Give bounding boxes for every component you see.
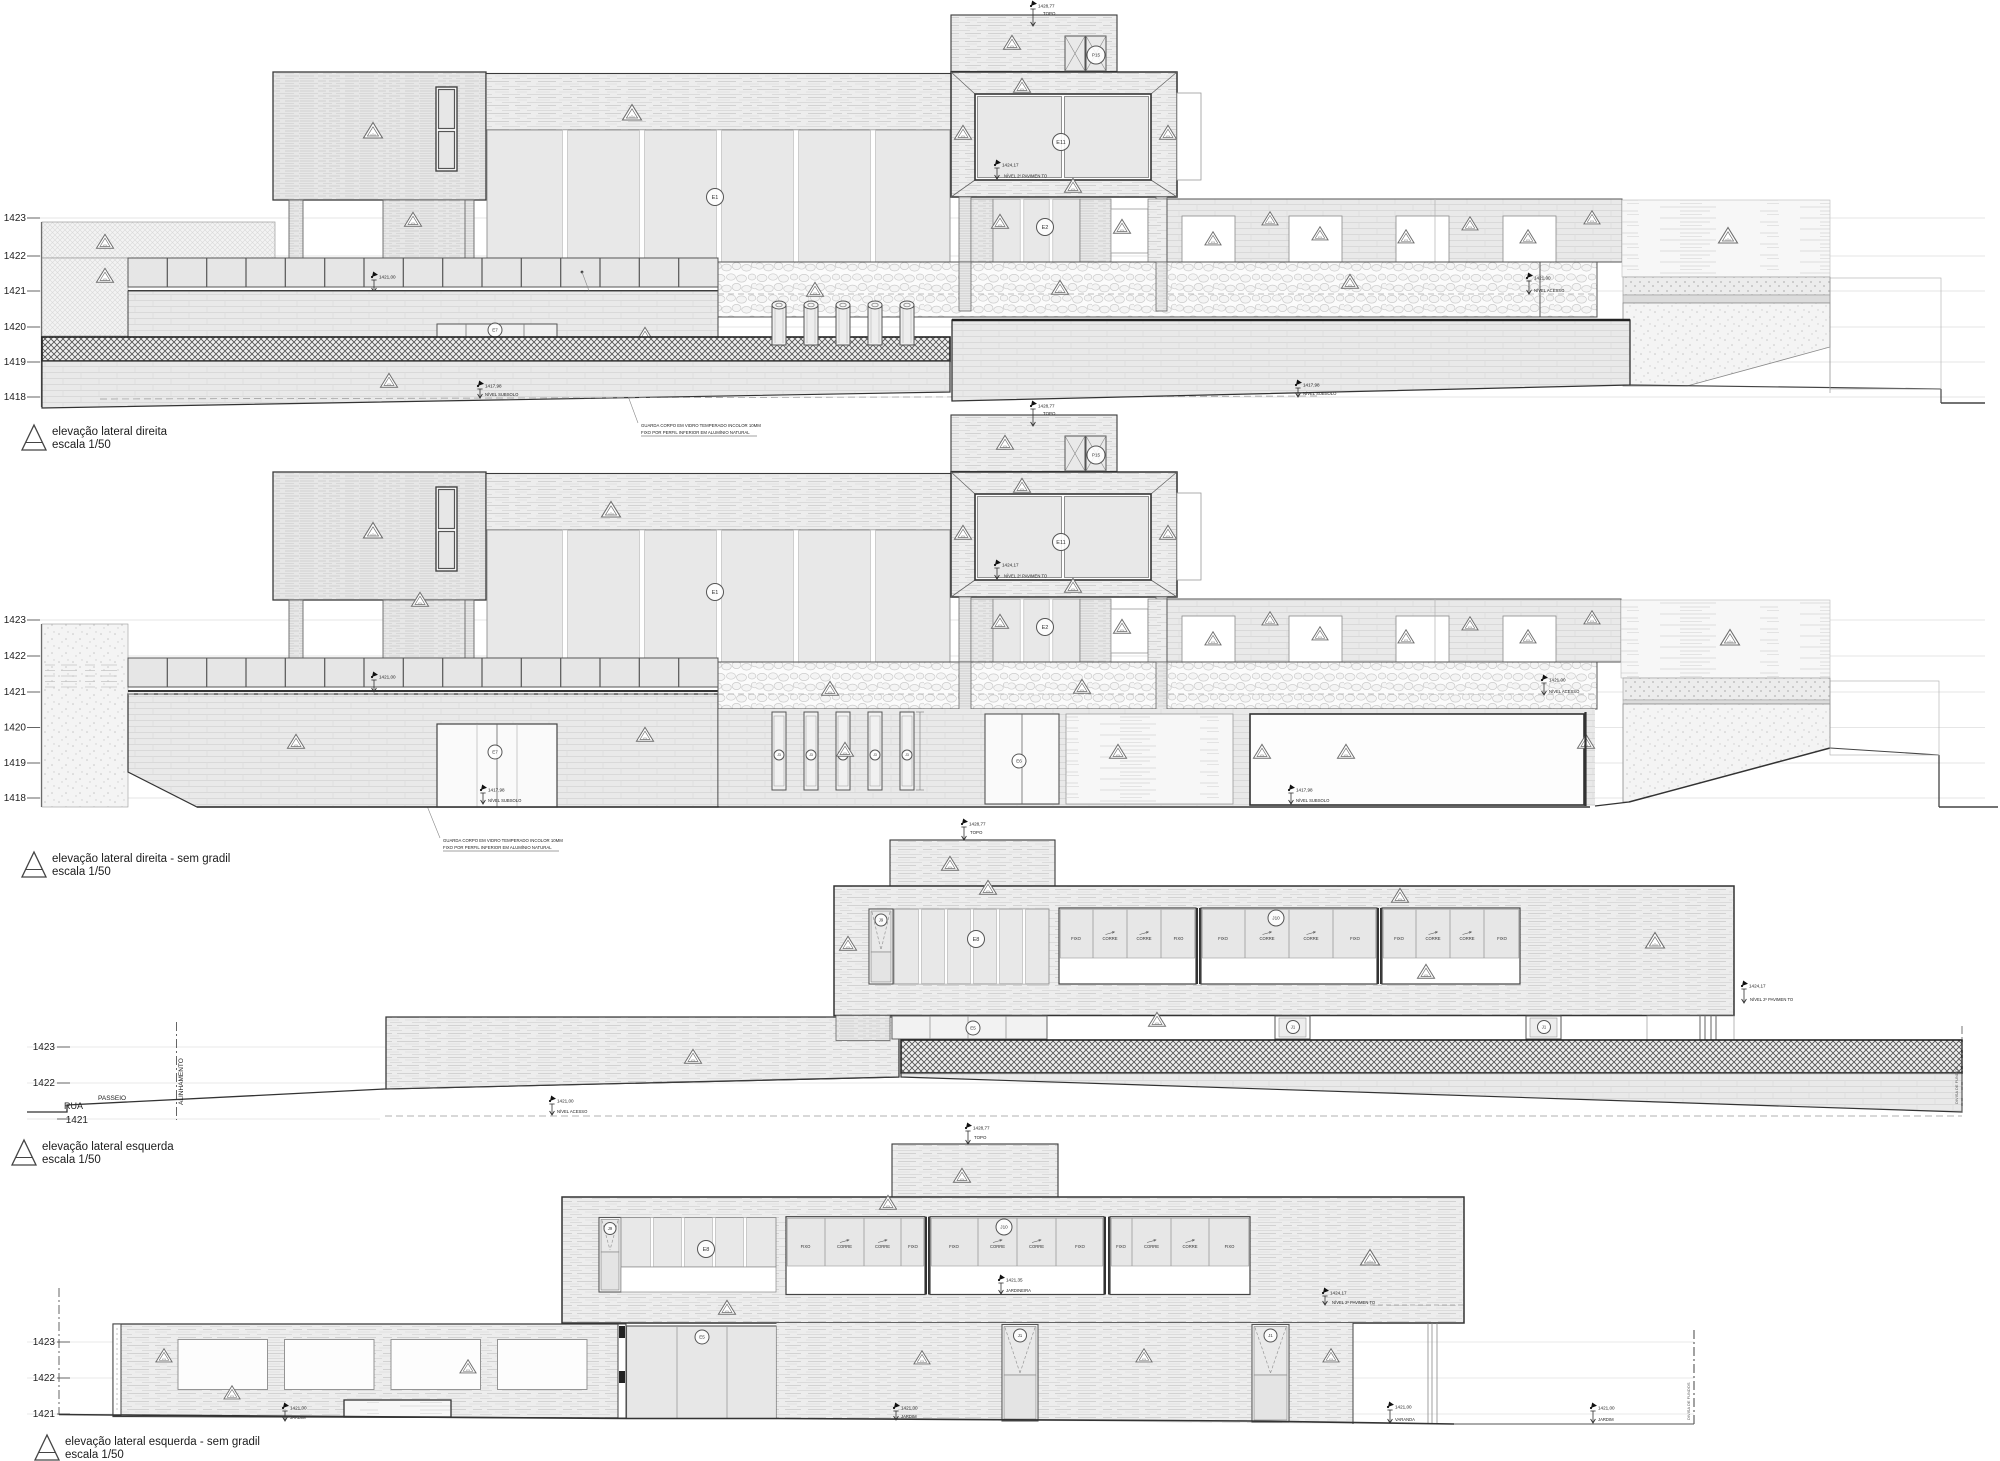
svg-text:J1: J1 — [1268, 1333, 1273, 1338]
svg-text:CORRE: CORRE — [1136, 936, 1151, 941]
svg-text:FIXO: FIXO — [1116, 1244, 1127, 1249]
svg-text:escala 1/50: escala 1/50 — [52, 866, 111, 878]
svg-text:1419: 1419 — [4, 758, 27, 769]
svg-text:E8: E8 — [973, 937, 980, 943]
svg-text:E5: E5 — [970, 1026, 976, 1031]
svg-text:FIXO: FIXO — [801, 1244, 812, 1249]
svg-text:E1: E1 — [712, 590, 719, 596]
svg-text:1417,98: 1417,98 — [488, 788, 505, 793]
svg-text:E2: E2 — [1042, 625, 1049, 631]
svg-text:NÍVEL SUBSOLO: NÍVEL SUBSOLO — [488, 798, 522, 803]
svg-text:1421,00: 1421,00 — [290, 1406, 307, 1411]
svg-text:PASSEIO: PASSEIO — [98, 1095, 126, 1102]
svg-text:1423: 1423 — [33, 1042, 56, 1053]
svg-text:1421: 1421 — [4, 687, 27, 698]
svg-text:GUARDA CORPO EM VIDRO TEMPERAD: GUARDA CORPO EM VIDRO TEMPERADO INCOLOR … — [641, 423, 761, 428]
svg-text:E2: E2 — [1042, 225, 1049, 231]
svg-text:1421,00: 1421,00 — [557, 1099, 574, 1104]
svg-text:1424,17: 1424,17 — [1749, 984, 1766, 989]
svg-text:J1: J1 — [1291, 1025, 1296, 1030]
svg-text:E7: E7 — [492, 750, 498, 755]
svg-text:NÍVEL ACESSO: NÍVEL ACESSO — [1534, 288, 1565, 293]
svg-text:FIXO: FIXO — [1174, 936, 1185, 941]
svg-text:FIXO: FIXO — [1225, 1244, 1236, 1249]
svg-text:CORRE: CORRE — [1144, 1244, 1159, 1249]
svg-text:1418: 1418 — [4, 793, 27, 804]
svg-text:1421,00: 1421,00 — [379, 675, 396, 680]
svg-text:1421,00: 1421,00 — [1395, 1405, 1412, 1410]
svg-text:CORRE: CORRE — [1425, 936, 1440, 941]
svg-text:1417,98: 1417,98 — [485, 384, 502, 389]
svg-text:CORRE: CORRE — [875, 1244, 890, 1249]
svg-text:NÍVEL 2º PAVIMEN TO: NÍVEL 2º PAVIMEN TO — [1332, 1300, 1376, 1305]
svg-text:P15: P15 — [1092, 453, 1101, 458]
svg-text:1424,17: 1424,17 — [1002, 163, 1019, 168]
svg-text:FIXO: FIXO — [1497, 936, 1508, 941]
svg-text:1428,77: 1428,77 — [1038, 4, 1055, 9]
svg-text:1421: 1421 — [66, 1115, 89, 1126]
svg-text:JARDIM: JARDIM — [901, 1414, 917, 1419]
svg-text:1420: 1420 — [4, 723, 27, 734]
svg-text:J10: J10 — [1272, 916, 1280, 921]
svg-text:1422: 1422 — [33, 1373, 56, 1384]
svg-text:E8: E8 — [703, 1247, 710, 1253]
svg-text:E11: E11 — [1056, 540, 1065, 546]
svg-text:FIXO: FIXO — [908, 1244, 919, 1249]
svg-text:1422: 1422 — [33, 1078, 56, 1089]
svg-text:TOPO: TOPO — [970, 830, 983, 835]
svg-text:GUARDA CORPO EM VIDRO TEMPERAD: GUARDA CORPO EM VIDRO TEMPERADO INCOLOR … — [443, 838, 563, 843]
svg-text:elevação lateral esquerda: elevação lateral esquerda — [42, 1141, 174, 1153]
svg-text:CORRE: CORRE — [1102, 936, 1117, 941]
svg-text:NÍVEL SUBSOLO: NÍVEL SUBSOLO — [1303, 391, 1337, 396]
svg-text:FIXO: FIXO — [1071, 936, 1082, 941]
svg-text:J3: J3 — [809, 753, 813, 757]
svg-text:1421: 1421 — [4, 286, 27, 297]
svg-text:elevação lateral direita - sem: elevação lateral direita - sem gradil — [52, 853, 230, 865]
svg-text:1421: 1421 — [33, 1409, 56, 1420]
svg-text:escala 1/50: escala 1/50 — [65, 1449, 124, 1461]
svg-text:1421,00: 1421,00 — [901, 1406, 918, 1411]
svg-text:1422: 1422 — [4, 651, 27, 662]
svg-text:NÍVEL 2º PAVIMEN TO: NÍVEL 2º PAVIMEN TO — [1750, 997, 1794, 1002]
svg-text:E1: E1 — [712, 195, 719, 201]
svg-text:FIXO: FIXO — [1075, 1244, 1086, 1249]
svg-text:TOPO: TOPO — [1043, 411, 1056, 416]
svg-text:FIXO POR PERFIL INFERIOR EM AL: FIXO POR PERFIL INFERIOR EM ALUMÍNIO NAT… — [641, 430, 750, 435]
svg-text:NÍVEL SUBSOLO: NÍVEL SUBSOLO — [1296, 798, 1330, 803]
svg-text:1421,35: 1421,35 — [1006, 1278, 1023, 1283]
svg-text:FIXO: FIXO — [1394, 936, 1405, 941]
svg-text:1424,17: 1424,17 — [1330, 1291, 1347, 1296]
svg-text:P15: P15 — [1092, 53, 1101, 58]
svg-text:1428,77: 1428,77 — [1038, 404, 1055, 409]
svg-text:DIVISA DE FUNDOS: DIVISA DE FUNDOS — [1954, 1066, 1959, 1104]
svg-text:1423: 1423 — [33, 1337, 56, 1348]
svg-text:J9: J9 — [608, 1226, 613, 1231]
svg-text:1422: 1422 — [4, 251, 27, 262]
svg-text:1421,00: 1421,00 — [1534, 276, 1551, 281]
svg-text:NÍVEL 2º PAVIMEN TO: NÍVEL 2º PAVIMEN TO — [1004, 574, 1048, 579]
svg-text:FIXO: FIXO — [1218, 936, 1229, 941]
svg-text:JARDIM: JARDIM — [1598, 1417, 1614, 1422]
svg-text:1428,77: 1428,77 — [973, 1126, 990, 1131]
svg-text:1424,17: 1424,17 — [1002, 563, 1019, 568]
svg-text:CORRE: CORRE — [1259, 936, 1274, 941]
svg-text:NÍVEL SUBSOLO: NÍVEL SUBSOLO — [485, 392, 519, 397]
svg-text:elevação lateral direita: elevação lateral direita — [52, 426, 168, 438]
svg-text:elevação lateral esquerda - se: elevação lateral esquerda - sem gradil — [65, 1436, 260, 1448]
svg-text:TOPO: TOPO — [1043, 11, 1056, 16]
svg-text:1421,00: 1421,00 — [1549, 678, 1566, 683]
svg-text:escala 1/50: escala 1/50 — [52, 439, 111, 451]
svg-text:CORRE: CORRE — [1303, 936, 1318, 941]
svg-text:J3: J3 — [777, 753, 781, 757]
svg-text:J10: J10 — [1000, 1225, 1008, 1230]
svg-text:1423: 1423 — [4, 615, 27, 626]
svg-text:CORRE: CORRE — [1182, 1244, 1197, 1249]
svg-text:J1: J1 — [1542, 1025, 1547, 1030]
svg-text:J3: J3 — [873, 753, 877, 757]
svg-text:NÍVEL ACESSO: NÍVEL ACESSO — [1549, 689, 1580, 694]
svg-text:1428,77: 1428,77 — [969, 822, 986, 827]
svg-text:J9: J9 — [879, 918, 884, 923]
svg-text:NÍVEL ACESSO: NÍVEL ACESSO — [557, 1109, 588, 1114]
svg-text:CORRE: CORRE — [990, 1244, 1005, 1249]
svg-text:FIXO: FIXO — [949, 1244, 960, 1249]
svg-text:DIVISA DE FUNDOS: DIVISA DE FUNDOS — [1686, 1382, 1691, 1420]
svg-text:CORRE: CORRE — [1029, 1244, 1044, 1249]
svg-text:E11: E11 — [1056, 140, 1065, 146]
svg-text:ALINHAMENTO: ALINHAMENTO — [178, 1058, 185, 1105]
svg-text:FIXO POR PERFIL INFERIOR EM AL: FIXO POR PERFIL INFERIOR EM ALUMÍNIO NAT… — [443, 845, 552, 850]
svg-text:1421,00: 1421,00 — [1598, 1406, 1615, 1411]
svg-text:escala 1/50: escala 1/50 — [42, 1154, 101, 1166]
svg-text:CORRE: CORRE — [1459, 936, 1474, 941]
svg-text:1417,98: 1417,98 — [1296, 788, 1313, 793]
svg-text:E6: E6 — [1016, 759, 1022, 764]
svg-text:1417,98: 1417,98 — [1303, 383, 1320, 388]
svg-text:E7: E7 — [492, 328, 498, 333]
svg-text:NÍVEL 2º PAVIMEN TO: NÍVEL 2º PAVIMEN TO — [1004, 174, 1048, 179]
svg-text:J3: J3 — [905, 753, 909, 757]
svg-text:E5: E5 — [699, 1335, 705, 1340]
svg-text:TOPO: TOPO — [974, 1135, 987, 1140]
svg-text:JARDINEIRA: JARDINEIRA — [1006, 1288, 1031, 1293]
svg-text:J1: J1 — [1018, 1333, 1023, 1338]
svg-text:FIXO: FIXO — [1350, 936, 1361, 941]
svg-text:1420: 1420 — [4, 322, 27, 333]
svg-text:1419: 1419 — [4, 357, 27, 368]
svg-text:1423: 1423 — [4, 213, 27, 224]
svg-text:1421,00: 1421,00 — [379, 275, 396, 280]
svg-text:1418: 1418 — [4, 392, 27, 403]
svg-text:CORRE: CORRE — [837, 1244, 852, 1249]
svg-text:VARANDA: VARANDA — [1395, 1417, 1415, 1422]
